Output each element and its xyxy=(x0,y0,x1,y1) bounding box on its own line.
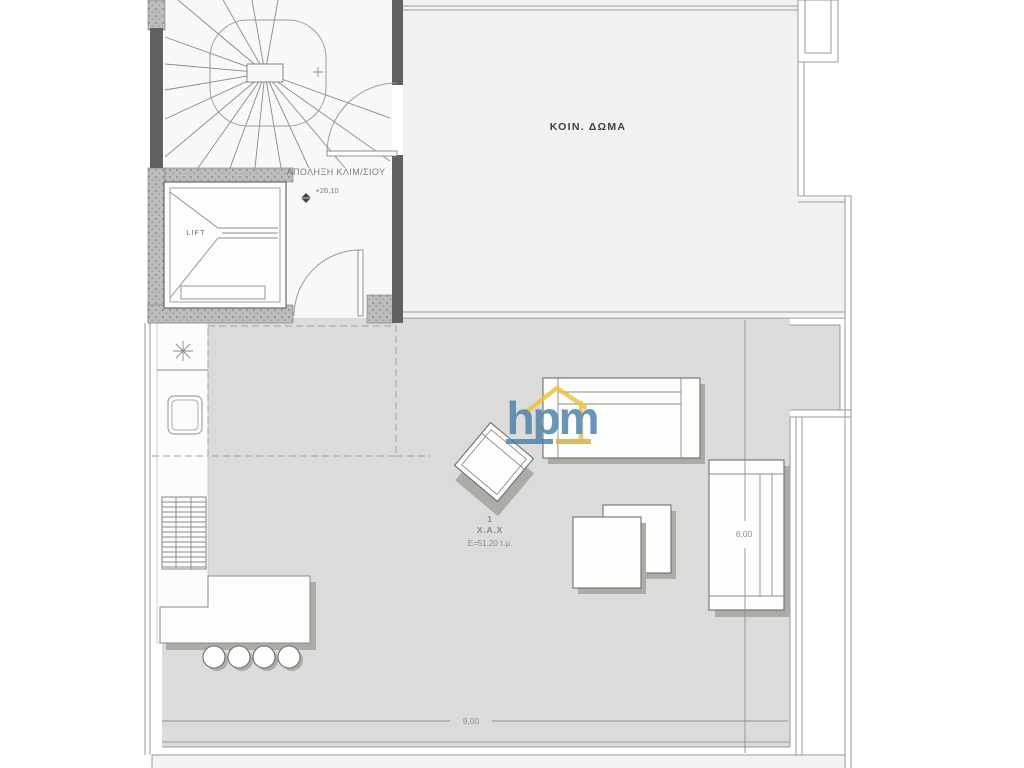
room-area: Ε=51.20 τ.μ. xyxy=(468,539,512,548)
door-leaf xyxy=(358,250,363,316)
logo-text: hpm xyxy=(506,392,597,444)
lower-edge-strip xyxy=(152,755,845,768)
terrace-ladder xyxy=(162,497,206,569)
common-roof-label: ΚΟΙΝ. ΔΩΜΑ xyxy=(550,121,627,133)
room-number: 1 xyxy=(487,514,493,524)
common-roof-area xyxy=(403,0,845,316)
dimension-vertical: 6,00 xyxy=(736,529,753,539)
stair-newel xyxy=(247,64,283,82)
logo-tagline-right xyxy=(556,439,591,444)
watermark-logo: hpm xyxy=(506,388,598,444)
elevation-label: +26,10 xyxy=(315,186,338,195)
stairwell-label: ΑΠΟΛΗΞΗ ΚΛΙΜ/ΣΙΟΥ xyxy=(287,167,386,177)
logo-tagline-left xyxy=(506,439,553,444)
lift: LIFT xyxy=(164,182,286,308)
floor-plan: LIFT xyxy=(0,0,1024,768)
dimension-horizontal: 9,00 xyxy=(463,716,480,726)
floor-plan-drawing: LIFT xyxy=(0,0,1024,768)
sink xyxy=(168,396,202,434)
hob-icon xyxy=(173,341,193,361)
door-leaf xyxy=(327,151,397,156)
room-type: Χ.Α.Χ xyxy=(477,525,503,535)
lift-label: LIFT xyxy=(186,228,205,237)
kitchen-strip xyxy=(157,323,208,643)
